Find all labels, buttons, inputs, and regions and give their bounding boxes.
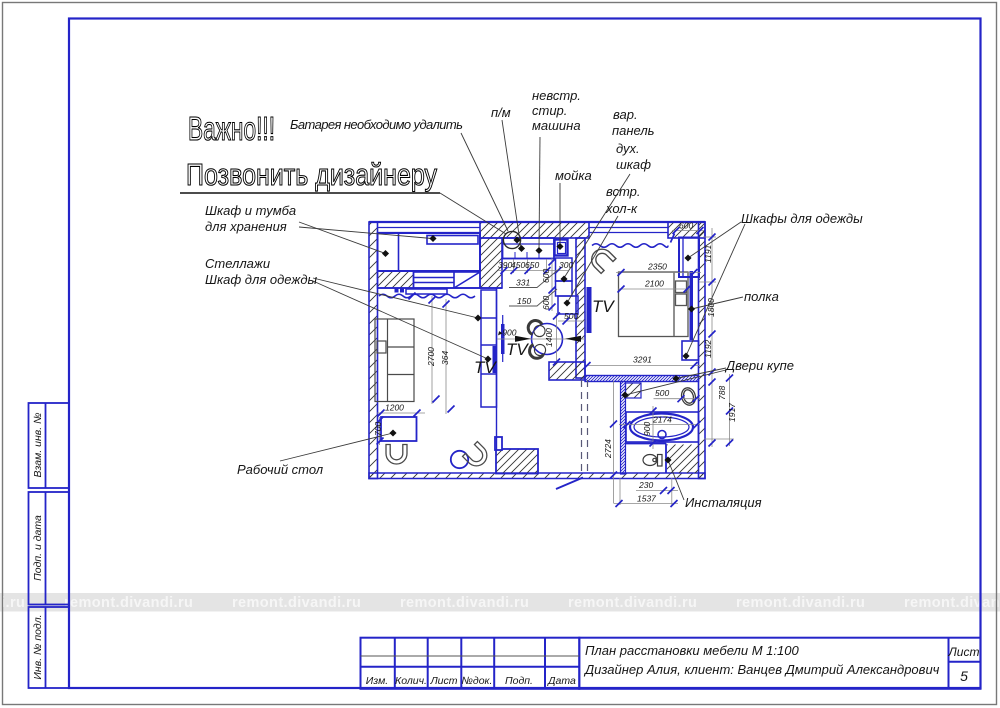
- svg-text:стир.: стир.: [532, 103, 567, 118]
- svg-text:600: 600: [541, 269, 551, 283]
- svg-text:План расстановки мебели М 1:10: План расстановки мебели М 1:100: [585, 643, 799, 658]
- svg-text:788: 788: [717, 386, 727, 400]
- svg-text:для хранения: для хранения: [205, 219, 287, 234]
- svg-text:remont.divandi.ru: remont.divandi.ru: [400, 595, 529, 611]
- svg-text:230: 230: [638, 480, 653, 490]
- svg-text:▸900: ▸900: [498, 328, 517, 338]
- svg-text:Рабочий стол: Рабочий стол: [237, 462, 324, 477]
- svg-text:Стеллажи: Стеллажи: [205, 256, 270, 271]
- svg-text:дух.: дух.: [616, 141, 640, 156]
- svg-text:remont.divandi.ru: remont.divandi.ru: [568, 595, 697, 611]
- svg-text:Дата: Дата: [547, 675, 576, 687]
- svg-text:364: 364: [440, 351, 450, 365]
- svg-text:600: 600: [541, 296, 551, 310]
- svg-text:панель: панель: [612, 123, 655, 138]
- svg-text:1537: 1537: [637, 494, 656, 504]
- svg-text:полка: полка: [744, 289, 779, 304]
- svg-text:Взам. инв. №: Взам. инв. №: [32, 413, 44, 478]
- svg-text:remont.divandi.ru: remont.divandi.ru: [64, 595, 193, 611]
- svg-text:Лист: Лист: [429, 675, 457, 687]
- svg-text:невстр.: невстр.: [532, 88, 581, 103]
- svg-text:1200: 1200: [385, 403, 404, 413]
- svg-text:машина: машина: [532, 118, 581, 133]
- svg-text:150: 150: [517, 296, 531, 306]
- svg-text:650: 650: [525, 260, 539, 270]
- svg-text:3291: 3291: [633, 355, 652, 365]
- svg-text:5: 5: [960, 668, 968, 684]
- svg-text:500: 500: [655, 388, 669, 398]
- svg-text:TV: TV: [506, 340, 529, 359]
- svg-text:Подп. и дата: Подп. и дата: [32, 515, 44, 581]
- svg-text:450: 450: [511, 260, 525, 270]
- svg-text:Инв. № подл.: Инв. № подл.: [32, 614, 44, 679]
- svg-text:remont.divandi.ru: remont.divandi.ru: [232, 595, 361, 611]
- svg-text:Шкаф и тумба: Шкаф и тумба: [205, 203, 296, 218]
- svg-text:встр.: встр.: [606, 184, 641, 199]
- svg-text:1917: 1917: [727, 403, 737, 422]
- svg-text:мойка: мойка: [555, 168, 592, 183]
- svg-text:Шкафы для одежды: Шкафы для одежды: [741, 211, 863, 226]
- svg-text:хол-к: хол-к: [605, 201, 638, 216]
- svg-text:300: 300: [559, 260, 573, 270]
- svg-text:TV: TV: [592, 297, 615, 316]
- svg-text:п/м: п/м: [491, 105, 511, 120]
- svg-text:2100: 2100: [644, 279, 664, 289]
- svg-text:2174: 2174: [652, 415, 672, 425]
- svg-text:TV: TV: [474, 358, 497, 377]
- svg-text:Позвонить дизайнеру: Позвонить дизайнеру: [186, 157, 437, 192]
- svg-text:Двери купе: Двери купе: [724, 358, 794, 373]
- svg-text:Изм.: Изм.: [366, 675, 388, 687]
- svg-text:№док.: №док.: [462, 675, 493, 687]
- svg-text:1192: 1192: [703, 339, 713, 358]
- svg-text:remont.divandi.ru: remont.divandi.ru: [0, 595, 25, 611]
- svg-text:remont.divandi.ru: remont.divandi.ru: [736, 595, 865, 611]
- svg-text:Батарея необходимо удалить: Батарея необходимо удалить: [290, 117, 463, 132]
- svg-text:900: 900: [642, 422, 652, 436]
- svg-text:2724: 2724: [603, 439, 613, 459]
- svg-text:шкаф: шкаф: [616, 157, 651, 172]
- svg-text:1400: 1400: [544, 328, 554, 347]
- svg-text:Дизайнер Алия, клиент: Ванцев: Дизайнер Алия, клиент: Ванцев Дмитрий Ал…: [583, 662, 940, 677]
- svg-text:Колич.: Колич.: [395, 675, 427, 687]
- svg-text:remont.divandi.ru: remont.divandi.ru: [904, 595, 1000, 611]
- svg-text:вар.: вар.: [613, 107, 638, 122]
- svg-text:2700: 2700: [426, 347, 436, 367]
- svg-text:Подп.: Подп.: [505, 675, 533, 687]
- svg-text:Важно!!!: Важно!!!: [188, 110, 275, 147]
- svg-text:Шкаф для одежды: Шкаф для одежды: [205, 272, 318, 287]
- svg-text:2350: 2350: [647, 262, 667, 272]
- svg-text:Лист: Лист: [948, 645, 980, 659]
- svg-text:700: 700: [373, 422, 383, 436]
- svg-text:600: 600: [679, 221, 693, 231]
- svg-text:500: 500: [564, 311, 578, 321]
- svg-text:Инсталяция: Инсталяция: [685, 495, 762, 510]
- svg-text:331: 331: [516, 278, 530, 288]
